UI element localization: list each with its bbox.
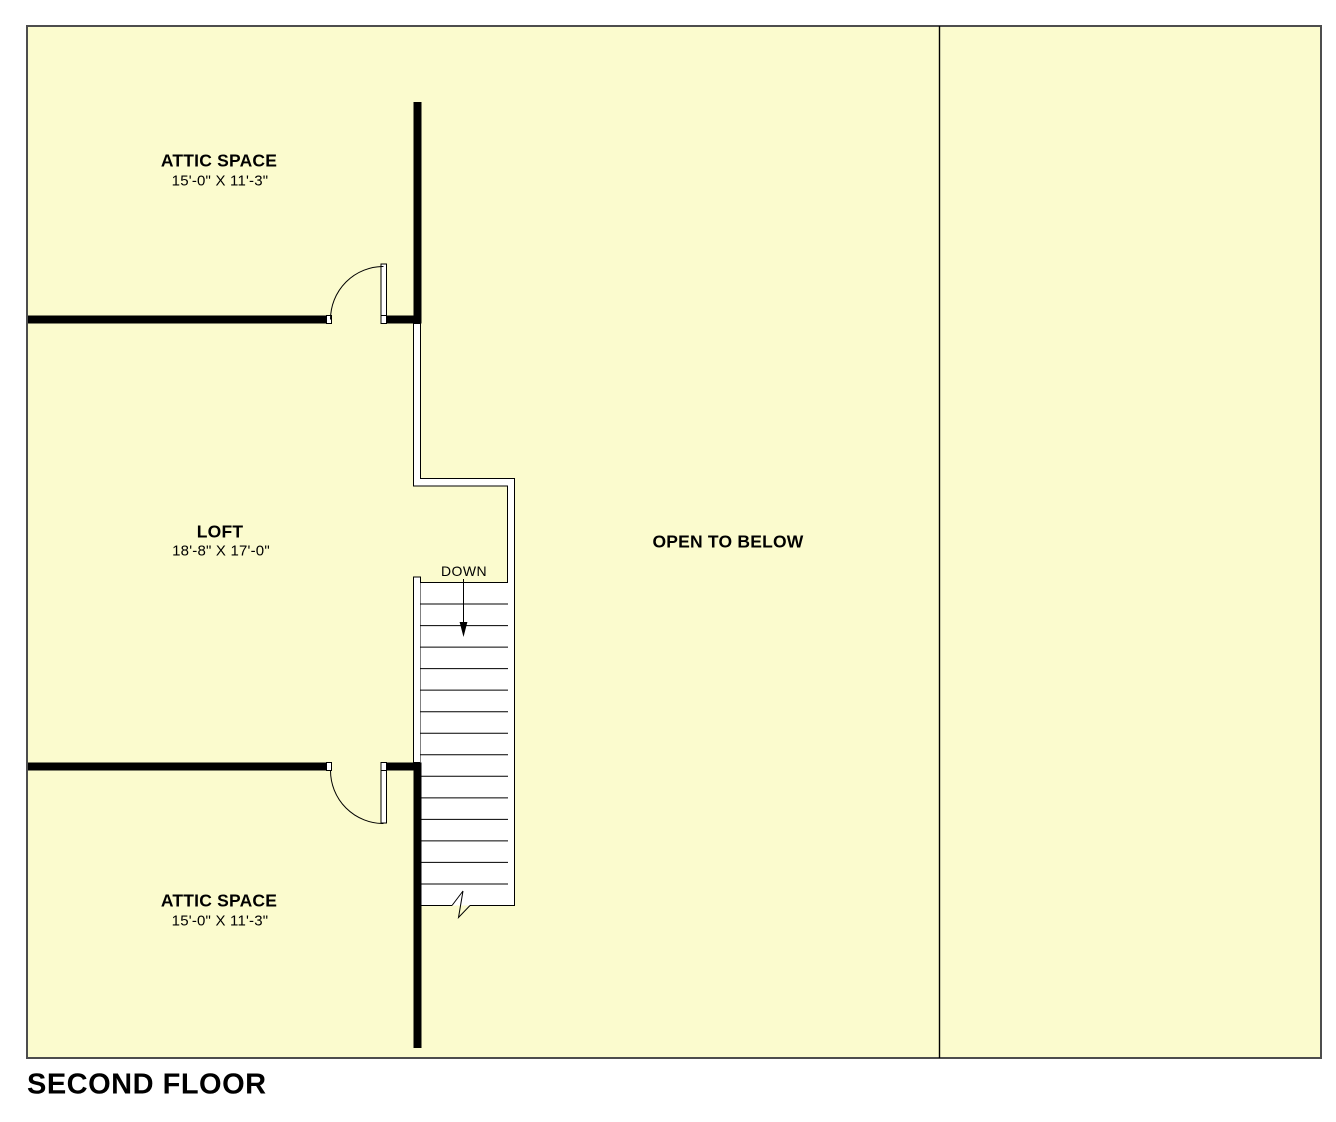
stairwell-wall	[414, 577, 421, 763]
door-jamb	[381, 763, 387, 771]
wall-upper-horizontal	[28, 316, 327, 324]
room-dims-loft: 18'-8" X 17'-0"	[172, 543, 270, 560]
stairs-down-label: DOWN	[441, 563, 487, 579]
door-jamb	[327, 763, 332, 771]
wall-upper-vertical	[414, 102, 422, 324]
floor-plan-page: ATTIC SPACE 15'-0" X 11'-3" LOFT 18'-8" …	[0, 0, 1336, 1122]
room-label-loft: LOFT	[197, 522, 243, 543]
room-dims-attic-top: 15'-0" X 11'-3"	[172, 173, 269, 190]
door-leaf	[381, 771, 387, 824]
wall-lower-horizontal-stub	[387, 763, 414, 771]
room-label-attic-top: ATTIC SPACE	[161, 151, 277, 172]
page-title: SECOND FLOOR	[27, 1069, 267, 1102]
room-label-open-to-below: OPEN TO BELOW	[652, 532, 803, 553]
room-label-attic-bottom: ATTIC SPACE	[161, 891, 277, 912]
wall-lower-horizontal	[28, 763, 327, 771]
stairs	[421, 579, 509, 918]
door-leaf	[381, 264, 387, 316]
wall-upper-horizontal-stub	[387, 316, 414, 324]
wall-lower-vertical	[414, 763, 422, 1049]
door-jamb	[381, 316, 387, 324]
room-dims-attic-bottom: 15'-0" X 11'-3"	[172, 913, 269, 930]
